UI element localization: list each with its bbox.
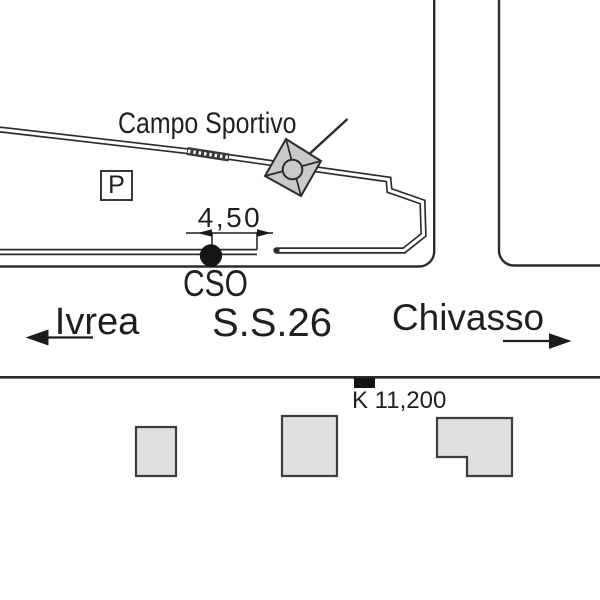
right-destination-label: Chivasso [392, 299, 544, 336]
sports-field-label: Campo Sportivo [118, 109, 297, 139]
left-destination-label: Ivrea [55, 303, 139, 341]
building-3-l-shaped [437, 418, 512, 476]
building-1 [136, 427, 176, 476]
road-name-label: S.S.26 [212, 303, 332, 343]
km-marker-label: K 11,200 [352, 389, 446, 413]
dimension-value-label: 4,50 [198, 204, 263, 232]
building-2 [282, 416, 337, 476]
buildings [136, 416, 512, 476]
symbol-circle [283, 160, 303, 180]
culvert-bar [187, 151, 229, 158]
sign-name-label: CSO [183, 265, 248, 302]
road-map-diagram: Campo Sportivo P 4,50 CSO Ivrea S.S.26 C… [0, 0, 600, 600]
parking-sign-label: P [108, 173, 125, 198]
parking-sign: P [100, 170, 133, 201]
main-road-top-edge-right [499, 0, 600, 266]
